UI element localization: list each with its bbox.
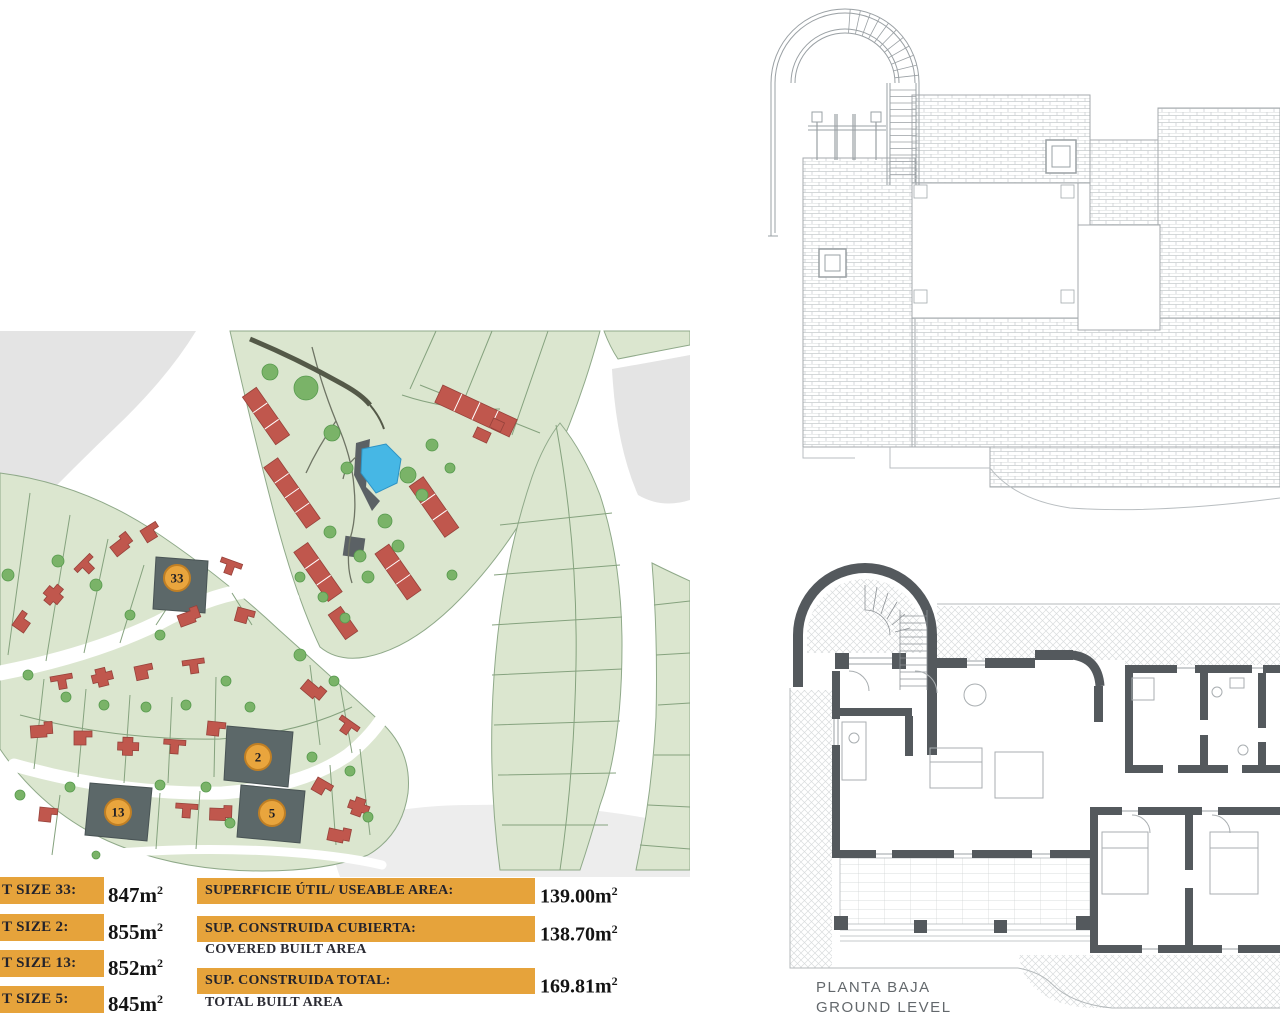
summary-value: 138.70m2 (540, 916, 618, 948)
roof-section-left (803, 158, 915, 447)
summary-value: 139.00m2 (540, 878, 618, 910)
plot-badge-33-number: 33 (171, 571, 185, 586)
summary-value: 169.81m2 (540, 968, 618, 1000)
brochure-page: 33 2 13 5 (0, 0, 1280, 1024)
summary-label: SUPERFICIE ÚTIL/ USEABLE AREA: (197, 878, 535, 904)
plot-size-label: T SIZE 33: (0, 877, 104, 904)
roof-section-mid (1090, 140, 1158, 225)
plot-size-value: 845m2 (108, 986, 163, 1018)
plot-size-value: 847m2 (108, 877, 163, 909)
plan-caption-line2: GROUND LEVEL (816, 999, 952, 1016)
plot-badge-2-number: 2 (255, 750, 262, 765)
gray-area-right (612, 355, 690, 504)
site-plan-map: 33 2 13 5 (0, 325, 690, 877)
plot-size-value: 855m2 (108, 914, 163, 946)
plot-badge-13-number: 13 (112, 805, 126, 820)
roof-terrace-1 (912, 183, 1078, 318)
ground-floor-plan: PLANTA BAJA GROUND LEVEL (780, 540, 1280, 1024)
summary-label: SUP. CONSTRUIDA TOTAL: (197, 968, 535, 994)
roof-section-right (1158, 108, 1280, 318)
patio-crosshatch (790, 579, 1280, 1008)
green-strip-topright (604, 331, 690, 359)
summary-sublabel: COVERED BUILT AREA (205, 941, 367, 959)
roof-terrace-2 (1078, 225, 1160, 330)
plot-size-label: T SIZE 5: (0, 986, 104, 1013)
plot-size-value: 852m2 (108, 950, 163, 982)
pergola-posts (808, 112, 886, 160)
roof-plan (760, 0, 1280, 515)
roof-section-bottom (912, 318, 1280, 447)
terrace (840, 858, 1090, 924)
plot-size-label: T SIZE 2: (0, 914, 104, 941)
plot-badge-5-number: 5 (269, 806, 276, 821)
plan-caption-line1: PLANTA BAJA (816, 979, 931, 996)
plot-size-label: T SIZE 13: (0, 950, 104, 977)
terrace-steps (840, 930, 1090, 941)
summary-label: SUP. CONSTRUIDA CUBIERTA: (197, 916, 535, 942)
summary-sublabel: TOTAL BUILT AREA (205, 994, 343, 1012)
roof-section-bottom-ext (990, 447, 1280, 487)
